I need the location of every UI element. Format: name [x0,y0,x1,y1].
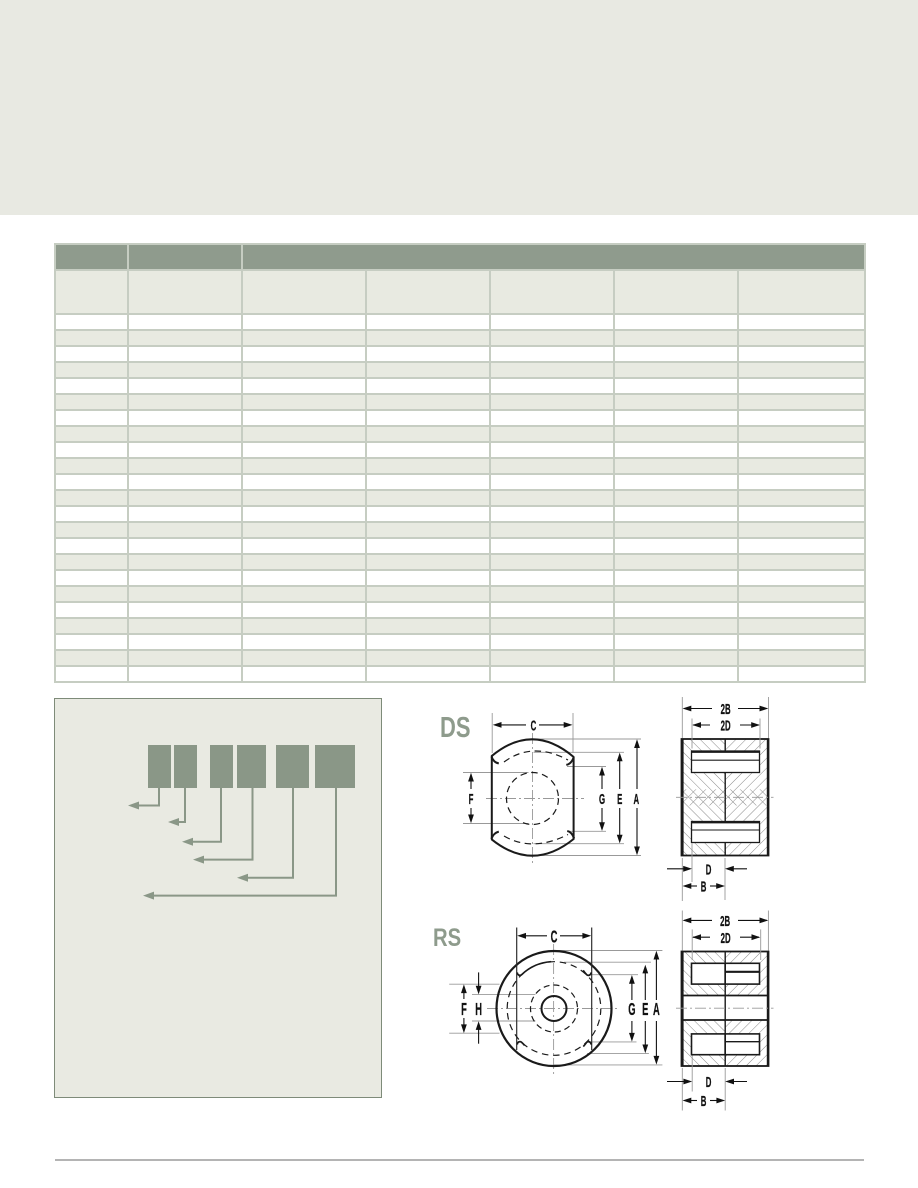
svg-text:H: H [475,1000,482,1020]
svg-text:G: G [628,1000,635,1020]
svg-text:2B: 2B [721,700,731,718]
svg-text:C: C [531,717,537,735]
svg-text:B: B [701,1092,707,1110]
svg-text:2D: 2D [721,929,731,947]
svg-text:D: D [706,861,712,879]
svg-text:F: F [469,790,474,808]
svg-text:2B: 2B [720,912,730,930]
svg-text:G: G [599,790,605,808]
svg-text:E: E [642,1000,648,1020]
svg-text:F: F [461,1000,467,1020]
svg-text:C: C [551,927,558,947]
svg-text:B: B [701,878,707,896]
svg-text:2D: 2D [721,717,731,735]
svg-text:A: A [653,1000,660,1020]
svg-text:E: E [617,790,622,808]
svg-text:D: D [706,1073,712,1091]
svg-text:A: A [633,790,639,808]
